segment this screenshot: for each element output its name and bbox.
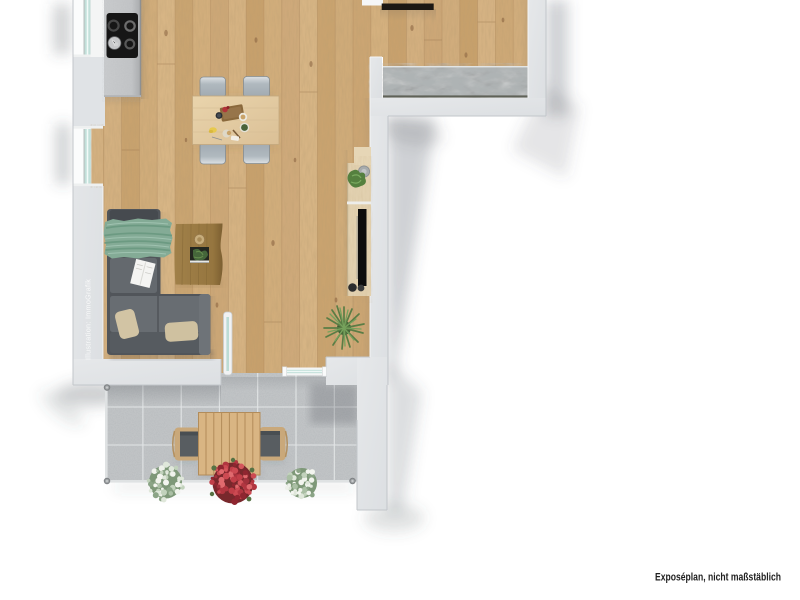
- svg-text:Illustration: ImmoGrafik: Illustration: ImmoGrafik: [84, 279, 93, 360]
- svg-text:Exposéplan, nicht maßstäblich: Exposéplan, nicht maßstäblich: [655, 572, 781, 584]
